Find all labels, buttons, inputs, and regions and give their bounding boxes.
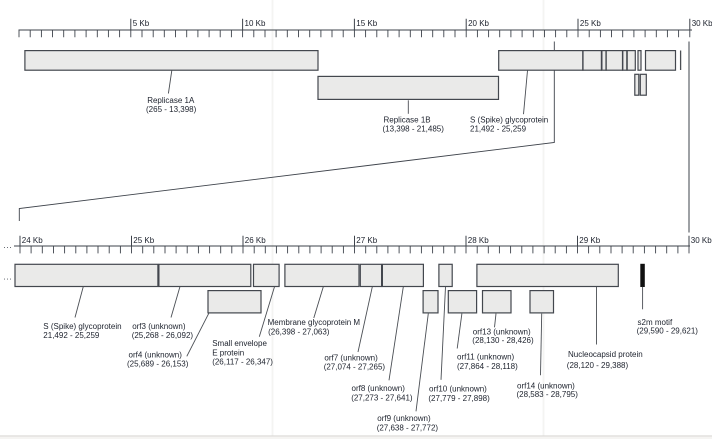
svg-text:(27,779 - 27,898): (27,779 - 27,898) — [428, 394, 490, 403]
svg-text:E protein: E protein — [212, 348, 244, 357]
svg-text:30 Kb: 30 Kb — [692, 19, 712, 28]
svg-text:(26,398 - 27,063): (26,398 - 27,063) — [268, 327, 330, 336]
svg-text:21,492 - 25,259: 21,492 - 25,259 — [43, 331, 100, 340]
svg-text:Nucleocapsid protein: Nucleocapsid protein — [568, 350, 643, 359]
svg-text:(27,074 - 27,265): (27,074 - 27,265) — [324, 363, 386, 372]
svg-text:30 Kb: 30 Kb — [691, 236, 712, 245]
svg-text:(25,268 - 26,092): (25,268 - 26,092) — [132, 331, 194, 340]
svg-text:orf9 (unknown): orf9 (unknown) — [377, 414, 431, 423]
svg-text:10 Kb: 10 Kb — [245, 19, 266, 28]
svg-text:15 Kb: 15 Kb — [356, 19, 377, 28]
svg-text:(28,120 - 29,388): (28,120 - 29,388) — [567, 361, 629, 370]
svg-text:(27,864 - 28,118): (27,864 - 28,118) — [457, 362, 518, 371]
svg-text:(13,398 - 21,485): (13,398 - 21,485) — [383, 125, 445, 134]
svg-text:Replicase 1A: Replicase 1A — [147, 96, 195, 105]
svg-text:...: ... — [4, 273, 13, 282]
svg-text:orf3 (unknown): orf3 (unknown) — [132, 322, 186, 331]
svg-text:25 Kb: 25 Kb — [580, 19, 601, 28]
svg-text:S (Spike) glycoprotein: S (Spike) glycoprotein — [470, 115, 548, 124]
svg-text:(265 - 13,398): (265 - 13,398) — [146, 105, 197, 114]
svg-text:orf8 (unknown): orf8 (unknown) — [352, 384, 406, 393]
svg-text:28 Kb: 28 Kb — [468, 236, 489, 245]
svg-text:20 Kb: 20 Kb — [468, 19, 489, 28]
svg-text:(25,689 - 26,153): (25,689 - 26,153) — [127, 360, 189, 369]
svg-text:(26,117 - 26,347): (26,117 - 26,347) — [212, 358, 273, 367]
svg-text:25 Kb: 25 Kb — [133, 236, 154, 245]
svg-text:(27,638 - 27,772): (27,638 - 27,772) — [377, 423, 439, 432]
svg-text:26 Kb: 26 Kb — [245, 236, 266, 245]
svg-text:orf11 (unknown): orf11 (unknown) — [457, 353, 515, 362]
svg-text:27 Kb: 27 Kb — [356, 236, 377, 245]
svg-text:21,492 - 25,259: 21,492 - 25,259 — [470, 125, 527, 134]
svg-text:24 Kb: 24 Kb — [22, 236, 43, 245]
svg-text:Replicase 1B: Replicase 1B — [384, 115, 431, 124]
svg-text:Small envelope: Small envelope — [212, 339, 267, 348]
svg-text:(27,273 - 27,641): (27,273 - 27,641) — [351, 394, 413, 403]
svg-text:orf7 (unknown): orf7 (unknown) — [324, 353, 378, 362]
svg-text:...: ... — [4, 241, 13, 250]
svg-text:(28,130 - 28,426): (28,130 - 28,426) — [472, 336, 534, 345]
svg-text:orf4 (unknown): orf4 (unknown) — [129, 350, 183, 359]
svg-text:Membrane glycoprotein M: Membrane glycoprotein M — [268, 318, 361, 327]
svg-text:S (Spike) glycoprotein: S (Spike) glycoprotein — [43, 322, 121, 331]
svg-text:(28,583 - 28,795): (28,583 - 28,795) — [517, 390, 579, 399]
svg-text:5 Kb: 5 Kb — [133, 19, 150, 28]
svg-text:orf10 (unknown): orf10 (unknown) — [429, 385, 487, 394]
svg-text:29 Kb: 29 Kb — [579, 236, 600, 245]
svg-text:(29,590 - 29,621): (29,590 - 29,621) — [637, 327, 699, 336]
